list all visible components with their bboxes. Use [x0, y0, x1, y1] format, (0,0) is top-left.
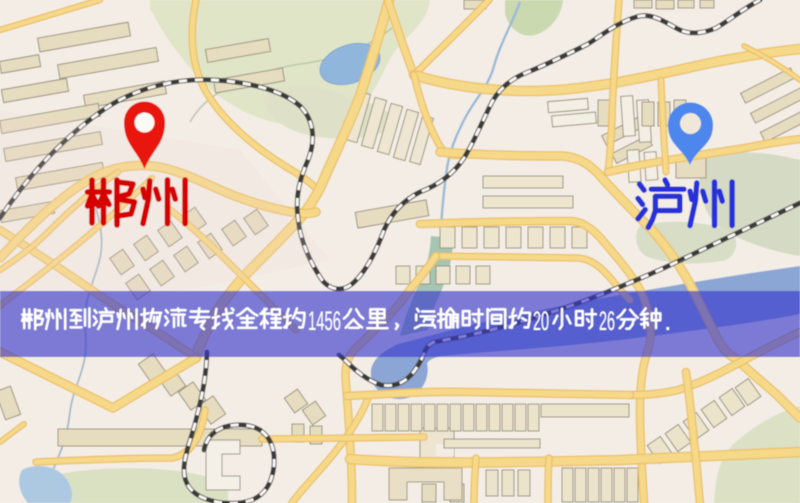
svg-text:1456: 1456 — [308, 306, 341, 336]
svg-text:26: 26 — [599, 306, 615, 336]
svg-text:.: . — [664, 306, 672, 336]
svg-text:20: 20 — [533, 306, 549, 336]
